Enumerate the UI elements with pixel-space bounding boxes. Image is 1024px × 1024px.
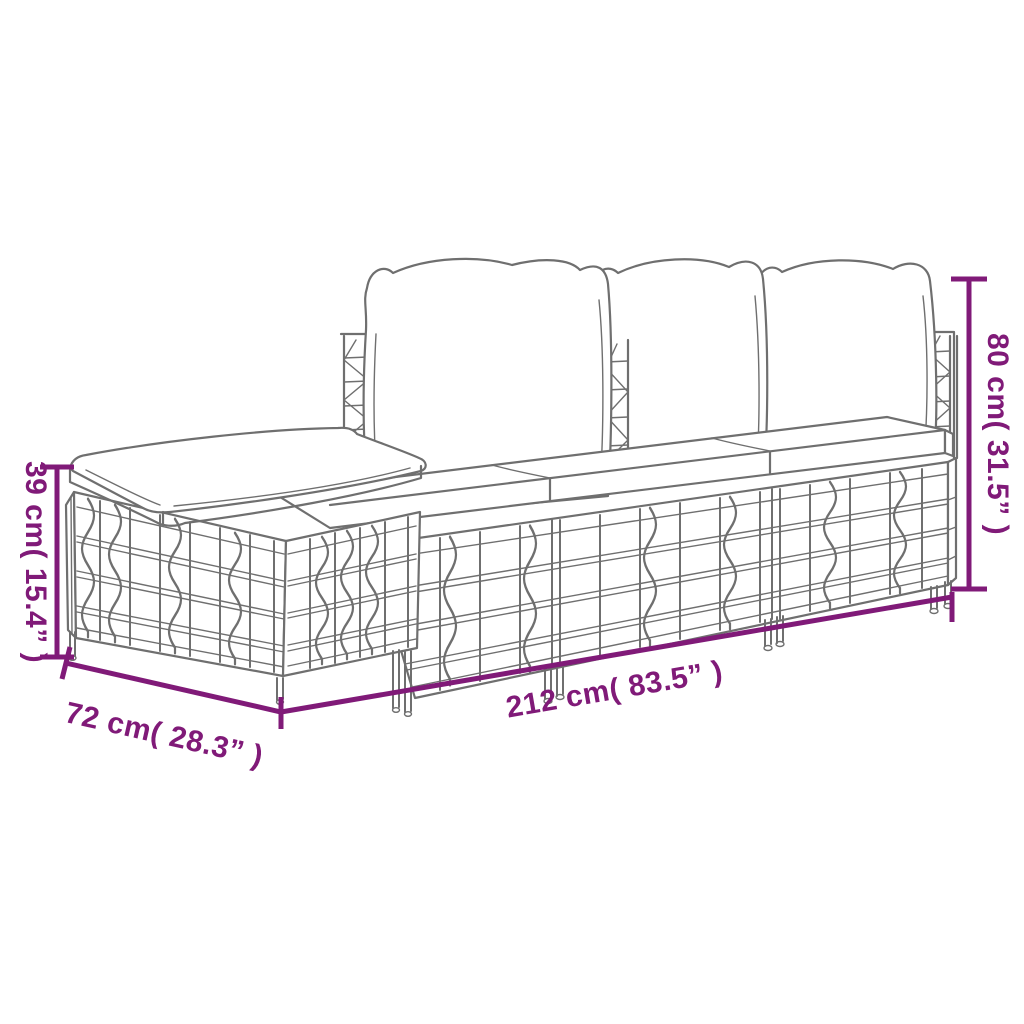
furniture-illustration [66,259,957,716]
dimension-depth-label: 72 cm( 28.3” ) [62,696,266,773]
product-dimension-diagram: 80 cm( 31.5” ) 39 cm( 15.4” ) 72 cm( 28.… [0,0,1024,1024]
dimension-seat-height-label: 39 cm( 15.4” ) [19,461,52,663]
dimension-height-label: 80 cm( 31.5” ) [981,333,1014,535]
diagram-canvas: 80 cm( 31.5” ) 39 cm( 15.4” ) 72 cm( 28.… [0,0,1024,1024]
dimension-seat-height: 39 cm( 15.4” ) [19,461,74,663]
dimension-height: 80 cm( 31.5” ) [951,279,1014,589]
